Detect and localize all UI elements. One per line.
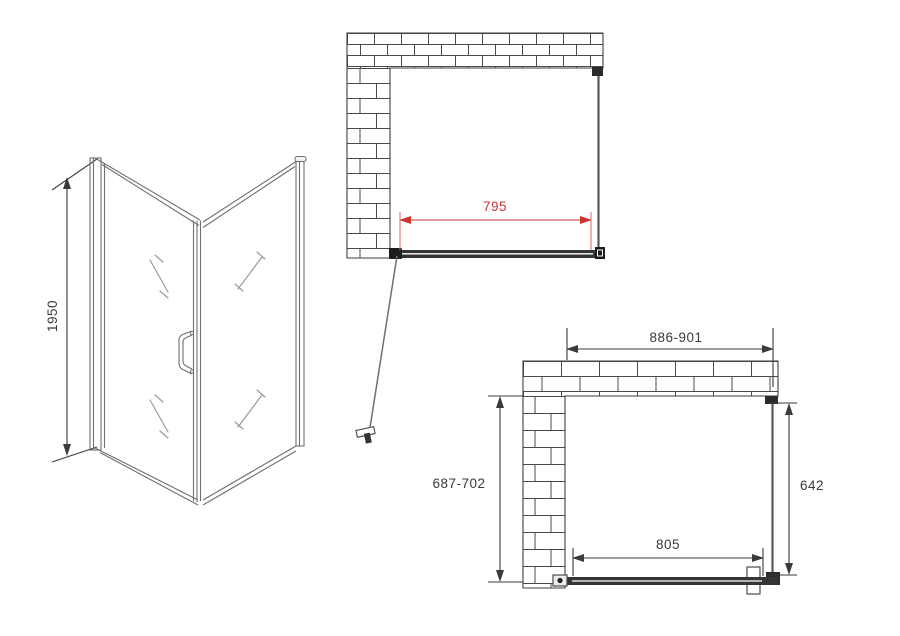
overall-width-dimension-label: 886-901 <box>649 330 702 345</box>
arrow-down-icon <box>785 563 793 575</box>
door-handle-3d <box>179 331 194 374</box>
arrow-left-icon <box>399 216 411 224</box>
wall-profile-cap <box>295 157 306 162</box>
brick-wall <box>347 33 603 258</box>
door-width-dimension-label: 795 <box>483 199 507 214</box>
bottom-plan-view: 886-901 687-702 <box>432 328 824 594</box>
corner-post-3d <box>194 221 201 503</box>
glass-shine-mark <box>150 255 168 298</box>
arrow-up-icon <box>496 396 504 408</box>
wall-bracket <box>592 67 603 76</box>
door-glass-width-dimension-label: 805 <box>656 537 680 552</box>
door-bottom-edge <box>95 448 198 500</box>
door-panel-3d <box>90 158 200 505</box>
door-plan-open <box>356 256 397 445</box>
arrow-right-icon <box>580 216 592 224</box>
side-panel-plan <box>765 396 780 585</box>
side-panel-3d <box>203 157 306 506</box>
door-plan-closed <box>389 247 605 259</box>
glass-shine-mark <box>150 395 168 438</box>
height-dimension-label: 1950 <box>45 300 60 332</box>
door-swing-line <box>369 256 397 434</box>
brick-wall <box>523 361 778 588</box>
glass-shine-mark <box>235 390 265 429</box>
door-plan <box>553 567 779 594</box>
arrow-left-icon <box>572 554 584 562</box>
arrow-up-icon <box>785 403 793 415</box>
depth-dimension: 687-702 <box>432 396 523 582</box>
height-dimension: 1950 <box>45 159 97 462</box>
door-top-edge <box>95 158 200 220</box>
depth-dimension-label: 687-702 <box>432 476 485 491</box>
arrow-left-icon <box>566 345 578 353</box>
glass-shine-mark <box>235 252 265 291</box>
corner-connector <box>595 247 605 259</box>
door-frame-left-profile <box>90 158 101 450</box>
arrow-right-icon <box>762 345 774 353</box>
arrow-right-icon <box>752 554 764 562</box>
door-handle-plan <box>356 427 377 445</box>
technical-drawing-canvas: 1950 <box>0 0 900 636</box>
door-glass-width-dimension: 805 <box>572 537 764 576</box>
side-panel-bottom-edge <box>203 446 296 500</box>
drawing-svg: 1950 <box>0 0 900 636</box>
side-panel-dimension-label: 642 <box>800 478 824 493</box>
side-panel-dimension: 642 <box>770 403 824 575</box>
perspective-view: 1950 <box>45 157 306 506</box>
arrow-up-icon <box>63 177 71 189</box>
arrow-down-icon <box>496 570 504 582</box>
side-panel-plan <box>592 67 603 250</box>
side-panel-top-edge <box>203 161 297 222</box>
door-width-dimension: 795 <box>399 199 592 250</box>
arrow-down-icon <box>63 444 71 456</box>
